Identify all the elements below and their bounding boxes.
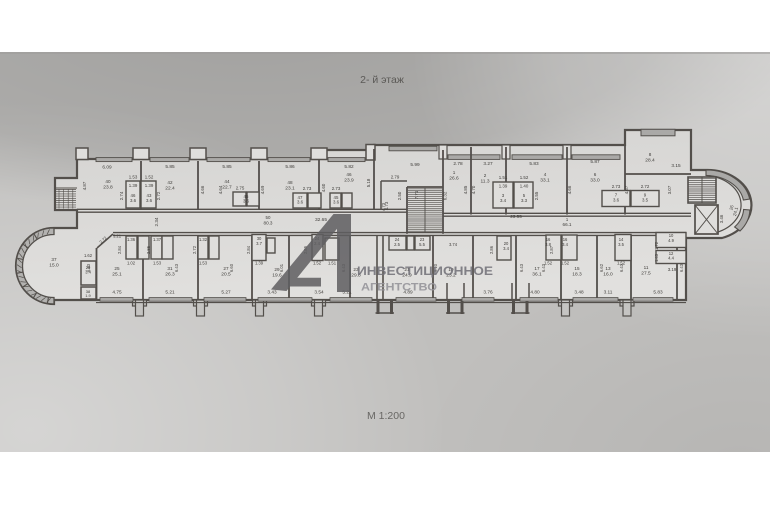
- svg-text:1.53: 1.53: [199, 261, 208, 266]
- svg-text:1.52: 1.52: [520, 175, 529, 180]
- svg-text:3.6: 3.6: [146, 198, 153, 203]
- svg-text:44: 44: [224, 179, 230, 184]
- svg-text:4.87: 4.87: [82, 181, 87, 190]
- svg-text:6.43: 6.43: [174, 263, 179, 272]
- svg-text:13: 13: [605, 266, 611, 271]
- svg-text:1.52: 1.52: [313, 261, 322, 266]
- svg-text:1.32: 1.32: [199, 237, 208, 242]
- svg-text:42: 42: [167, 180, 173, 185]
- svg-text:1.39: 1.39: [255, 261, 264, 266]
- svg-text:1.36: 1.36: [127, 237, 136, 242]
- svg-text:5.85: 5.85: [222, 164, 232, 170]
- svg-text:3.5: 3.5: [618, 242, 624, 247]
- svg-text:25.1: 25.1: [112, 271, 122, 277]
- svg-text:5.83: 5.83: [529, 161, 539, 167]
- svg-text:4.67: 4.67: [624, 185, 629, 194]
- svg-text:2.73: 2.73: [332, 186, 341, 191]
- svg-text:26.6: 26.6: [449, 175, 459, 181]
- svg-text:1.02: 1.02: [127, 261, 136, 266]
- svg-text:3.7: 3.7: [256, 241, 262, 246]
- svg-text:ИНВЕСТИЦИОННОЕ: ИНВЕСТИЦИОННОЕ: [357, 266, 493, 278]
- svg-text:5.82: 5.82: [344, 164, 354, 170]
- svg-text:37: 37: [51, 257, 57, 262]
- svg-text:6.62: 6.62: [599, 263, 604, 272]
- svg-text:6.32: 6.32: [443, 191, 448, 200]
- svg-text:1.51: 1.51: [328, 261, 337, 266]
- svg-text:19.6: 19.6: [272, 272, 282, 278]
- svg-text:6.43: 6.43: [86, 263, 91, 272]
- svg-text:5.18: 5.18: [366, 178, 371, 187]
- svg-text:2.50: 2.50: [397, 191, 402, 200]
- svg-text:1.52: 1.52: [145, 175, 154, 180]
- svg-text:1.9: 1.9: [85, 293, 91, 298]
- svg-text:3.4: 3.4: [562, 242, 568, 247]
- svg-text:2.72: 2.72: [156, 191, 161, 200]
- svg-text:3.11: 3.11: [604, 290, 613, 296]
- svg-text:4.4: 4.4: [668, 256, 674, 261]
- svg-text:1.43: 1.43: [654, 253, 659, 262]
- svg-text:22.7: 22.7: [222, 184, 232, 190]
- svg-text:2.5: 2.5: [394, 242, 400, 247]
- svg-text:3.6: 3.6: [333, 200, 340, 205]
- svg-text:1.39: 1.39: [145, 183, 154, 188]
- svg-text:4: 4: [544, 172, 547, 177]
- svg-text:4.69: 4.69: [260, 185, 265, 194]
- svg-text:3.07: 3.07: [667, 185, 672, 194]
- svg-text:1.53: 1.53: [129, 175, 138, 180]
- svg-text:1.39: 1.39: [499, 184, 508, 189]
- svg-text:4.75: 4.75: [112, 290, 122, 296]
- svg-text:2.86: 2.86: [489, 245, 494, 254]
- svg-text:2.55: 2.55: [534, 191, 539, 200]
- svg-text:6.43: 6.43: [519, 263, 524, 272]
- svg-text:2.73: 2.73: [303, 186, 312, 191]
- svg-text:3.54: 3.54: [314, 290, 324, 296]
- svg-text:2- й этаж: 2- й этаж: [360, 74, 404, 86]
- svg-text:16.0: 16.0: [603, 271, 613, 277]
- svg-text:2.34: 2.34: [154, 217, 159, 226]
- svg-text:1.40: 1.40: [520, 184, 529, 189]
- svg-text:6.09: 6.09: [102, 165, 112, 171]
- svg-text:22.4: 22.4: [165, 185, 175, 191]
- svg-text:5.5: 5.5: [419, 242, 425, 247]
- svg-text:33.1: 33.1: [540, 177, 550, 183]
- svg-text:23.55: 23.55: [510, 214, 522, 219]
- svg-text:5.87: 5.87: [590, 159, 600, 165]
- svg-text:1: 1: [453, 170, 456, 175]
- svg-text:3.19: 3.19: [668, 267, 677, 272]
- svg-text:3.4: 3.4: [503, 246, 509, 251]
- svg-text:4.60: 4.60: [321, 183, 326, 192]
- svg-text:11.3: 11.3: [480, 178, 489, 184]
- svg-text:18.3: 18.3: [572, 271, 582, 277]
- svg-text:6: 6: [594, 172, 597, 177]
- svg-text:3.6: 3.6: [297, 200, 304, 205]
- svg-text:4.85: 4.85: [463, 185, 468, 194]
- svg-text:31: 31: [167, 266, 173, 271]
- svg-text:1.39: 1.39: [129, 183, 138, 188]
- svg-text:4.73: 4.73: [381, 202, 386, 211]
- svg-text:3.27: 3.27: [483, 161, 493, 167]
- svg-text:5.27: 5.27: [221, 290, 231, 296]
- svg-text:2.75: 2.75: [236, 186, 245, 191]
- svg-text:3.6: 3.6: [130, 198, 137, 203]
- svg-text:3.5: 3.5: [642, 198, 649, 203]
- svg-text:3.3: 3.3: [521, 198, 528, 203]
- svg-text:1.53: 1.53: [153, 261, 162, 266]
- svg-text:48: 48: [287, 180, 293, 185]
- svg-text:23.1: 23.1: [285, 185, 295, 191]
- svg-text:3.76: 3.76: [483, 290, 493, 296]
- svg-text:15.0: 15.0: [49, 263, 59, 269]
- svg-text:50: 50: [266, 215, 271, 220]
- svg-text:2.74: 2.74: [119, 191, 124, 200]
- svg-text:3.43: 3.43: [267, 290, 277, 296]
- svg-text:1.52: 1.52: [561, 261, 570, 266]
- svg-text:4.80: 4.80: [530, 290, 540, 296]
- svg-text:3.4: 3.4: [500, 198, 507, 203]
- svg-text:2.87: 2.87: [549, 245, 554, 254]
- svg-text:25: 25: [114, 266, 120, 271]
- svg-text:1.37: 1.37: [153, 237, 162, 242]
- svg-text:23.8: 23.8: [103, 184, 113, 190]
- svg-text:1.62: 1.62: [84, 253, 93, 258]
- svg-text:4.66: 4.66: [200, 185, 205, 194]
- svg-text:3.21: 3.21: [113, 234, 122, 239]
- svg-text:3.15: 3.15: [671, 163, 681, 169]
- svg-text:3.74: 3.74: [449, 242, 458, 247]
- svg-text:40: 40: [105, 179, 111, 184]
- svg-text:АГЕНТСТВО: АГЕНТСТВО: [361, 282, 437, 294]
- svg-text:32.65: 32.65: [315, 217, 327, 223]
- svg-text:33.0: 33.0: [590, 177, 600, 183]
- svg-text:5.85: 5.85: [165, 164, 175, 170]
- svg-text:5.99: 5.99: [410, 162, 420, 168]
- svg-text:23.9: 23.9: [344, 177, 354, 183]
- svg-text:2.72: 2.72: [641, 184, 650, 189]
- svg-text:27.5: 27.5: [641, 270, 651, 276]
- svg-text:6.43: 6.43: [541, 263, 546, 272]
- svg-text:2.84: 2.84: [246, 245, 251, 254]
- svg-text:М 1:200: М 1:200: [367, 410, 405, 422]
- svg-text:11: 11: [644, 265, 649, 270]
- svg-text:4.9: 4.9: [668, 238, 674, 243]
- svg-text:2: 2: [484, 173, 487, 178]
- svg-text:3.48: 3.48: [574, 290, 584, 296]
- svg-text:15: 15: [574, 266, 580, 271]
- svg-text:46: 46: [346, 172, 352, 177]
- svg-text:1.72: 1.72: [654, 241, 659, 250]
- svg-text:2.85: 2.85: [146, 245, 151, 254]
- svg-text:6.43: 6.43: [619, 263, 624, 272]
- svg-text:17: 17: [534, 266, 540, 271]
- svg-text:66.1: 66.1: [563, 222, 572, 227]
- svg-text:2.78: 2.78: [453, 161, 463, 167]
- svg-text:3.6: 3.6: [243, 199, 250, 204]
- svg-text:6.60: 6.60: [229, 263, 234, 272]
- svg-text:5.21: 5.21: [165, 290, 175, 296]
- svg-text:28.4: 28.4: [645, 157, 655, 163]
- svg-text:2.84: 2.84: [117, 245, 122, 254]
- svg-text:5.83: 5.83: [653, 290, 663, 296]
- svg-text:5.86: 5.86: [285, 164, 295, 170]
- svg-text:2.72: 2.72: [192, 245, 197, 254]
- svg-text:6.01: 6.01: [279, 263, 284, 272]
- svg-text:4.70: 4.70: [471, 185, 476, 194]
- svg-text:3.46: 3.46: [719, 214, 724, 223]
- svg-text:80.3: 80.3: [264, 221, 273, 226]
- svg-text:6.43: 6.43: [679, 263, 684, 272]
- svg-text:2.79: 2.79: [391, 175, 400, 180]
- svg-text:2.73: 2.73: [612, 184, 621, 189]
- svg-text:8: 8: [649, 152, 652, 157]
- svg-text:1.51: 1.51: [499, 175, 508, 180]
- svg-text:3.6: 3.6: [613, 198, 620, 203]
- svg-text:7.71: 7.71: [414, 190, 419, 199]
- svg-text:4.64: 4.64: [218, 185, 223, 194]
- svg-text:4.66: 4.66: [567, 185, 572, 194]
